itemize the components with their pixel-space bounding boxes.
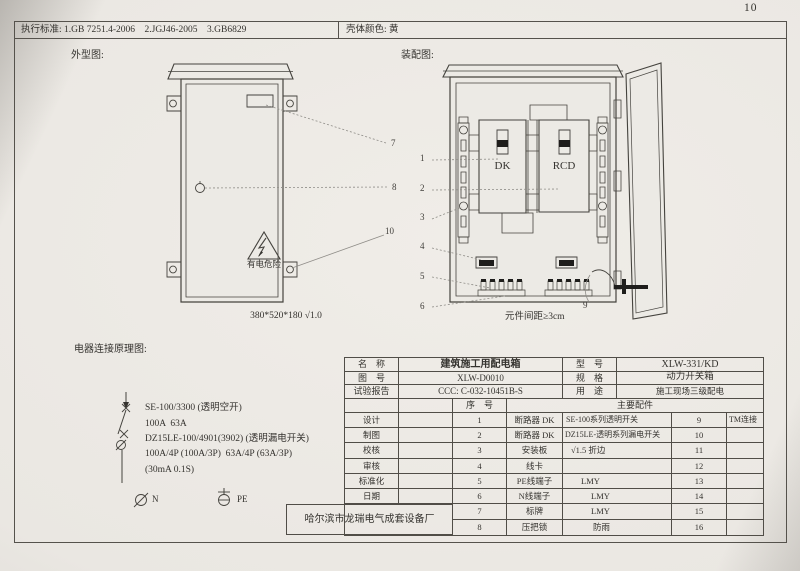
cell-note	[727, 428, 763, 443]
cell-seq-header: 序 号	[453, 399, 507, 413]
cell-seq: 7	[453, 504, 507, 520]
cell-model-label: 型 号	[563, 358, 617, 372]
cell-seq: 3	[453, 443, 507, 459]
callout-4: 4	[420, 241, 425, 251]
spec-line-4: 100A/4P (100A/3P) 63A/4P (63A/3P)	[145, 449, 292, 460]
assembly-view-title: 装配图:	[401, 50, 434, 62]
callout-7: 7	[391, 138, 396, 148]
cell-use-value: 施工现场三级配电	[617, 385, 763, 399]
cell-model-value: XLW-331/KD	[617, 358, 763, 372]
callout-8: 8	[392, 182, 397, 192]
callout-3: 3	[420, 212, 425, 222]
cell-part-name: 断路器 DK	[507, 413, 563, 428]
callout-6: 6	[420, 301, 425, 311]
cell-part-name: 标牌	[507, 504, 563, 520]
cell-main-parts-header: 主要配件	[507, 399, 763, 413]
cell-seq: 4	[453, 459, 507, 474]
cell-part-desc: 防雨	[563, 520, 672, 535]
cell-drawing-no-label: 图 号	[345, 372, 399, 385]
component-label-dk: DK	[479, 160, 526, 173]
cell-seq2: 12	[672, 459, 727, 474]
cell-seq2: 16	[672, 520, 727, 535]
callout-2: 2	[420, 183, 425, 193]
warning-text: 有电危险	[240, 260, 288, 270]
cell-part-desc: DZ15LE-透明系列漏电开关	[563, 428, 672, 443]
cabinet-door	[626, 63, 667, 319]
cell-part-name: N线端子	[507, 489, 563, 504]
cell-note	[727, 520, 763, 535]
cell-blank	[399, 474, 453, 489]
callout-10: 10	[385, 226, 394, 236]
cell-blank	[399, 489, 453, 504]
cell-note	[727, 459, 763, 474]
cell-sign-design: 设计	[345, 413, 399, 428]
callout-5: 5	[420, 271, 425, 281]
cell-sign-draw: 制图	[345, 428, 399, 443]
cell-sign-audit: 审核	[345, 459, 399, 474]
dimension-note: 380*520*180 √1.0	[230, 311, 342, 322]
cell-blank	[399, 459, 453, 474]
assembly-cabinet-drawing	[432, 63, 667, 319]
manufacturer-box: 哈尔滨市龙瑞电气成套设备厂	[286, 504, 453, 535]
cell-blank	[399, 399, 453, 413]
cell-part-desc	[563, 459, 672, 474]
cell-note: TM连接	[727, 413, 763, 428]
cell-name-value: 建筑施工用配电箱	[399, 358, 563, 372]
cell-seq2: 9	[672, 413, 727, 428]
cell-test-report-label: 试验报告	[345, 385, 399, 399]
cell-drawing-no-value: XLW-D0010	[399, 372, 563, 385]
cell-part-name: 压把锁	[507, 520, 563, 535]
cell-part-desc: LMY	[563, 474, 672, 489]
pe-label: PE	[237, 494, 248, 504]
cell-seq: 6	[453, 489, 507, 504]
cell-use-label: 用 途	[563, 385, 617, 399]
cell-sign-check: 校核	[345, 443, 399, 459]
cell-part-desc: LMY	[563, 489, 672, 504]
cell-note	[727, 474, 763, 489]
spacing-note: 元件间距≥3cm	[505, 312, 565, 323]
pe-terminal-icon	[218, 488, 230, 506]
spec-line-3: DZ15LE-100/4901(3902) (透明漏电开关)	[145, 434, 309, 445]
cell-note	[727, 443, 763, 459]
cell-blank	[399, 443, 453, 459]
cell-seq2: 11	[672, 443, 727, 459]
cell-spec-value: 动力开关箱	[617, 372, 763, 385]
spec-line-5: (30mA 0.1S)	[145, 465, 194, 476]
title-block-table: 名 称 建筑施工用配电箱 型 号 XLW-331/KD 图 号 XLW-D001…	[344, 357, 764, 536]
cell-seq2: 15	[672, 504, 727, 520]
cell-note	[727, 489, 763, 504]
cell-blank	[399, 428, 453, 443]
cell-sign-standard: 标准化	[345, 474, 399, 489]
cell-seq: 2	[453, 428, 507, 443]
callout-9: 9	[583, 300, 588, 310]
cell-part-name: 断路器 DK	[507, 428, 563, 443]
cell-seq2: 13	[672, 474, 727, 489]
neutral-label: N	[152, 494, 159, 504]
drawing-sheet: 10 执行标准: 1.GB 7251.4-2006 2.JGJ46-2005 3…	[0, 0, 800, 571]
cell-part-desc: SE-100系列透明开关	[563, 413, 672, 428]
cell-part-desc: √1.5 折边	[563, 443, 672, 459]
neutral-bus-icon	[134, 493, 148, 507]
spec-line-1: SE-100/3300 (透明空开)	[145, 403, 242, 414]
cell-part-desc: LMY	[563, 504, 672, 520]
outline-view-title: 外型图:	[71, 50, 104, 62]
cell-sign-date: 日期	[345, 489, 399, 504]
cell-seq2: 10	[672, 428, 727, 443]
cell-note	[727, 504, 763, 520]
cell-part-name: 线卡	[507, 459, 563, 474]
cell-part-name: PE线端子	[507, 474, 563, 489]
cell-seq: 1	[453, 413, 507, 428]
schematic-title: 电器连接原理图:	[74, 344, 147, 356]
cell-blank	[345, 399, 399, 413]
cell-seq: 8	[453, 520, 507, 535]
callout-1: 1	[420, 153, 425, 163]
cell-blank	[399, 413, 453, 428]
component-label-rcd: RCD	[539, 160, 589, 173]
spec-line-2: 100A 63A	[145, 419, 187, 430]
cell-seq2: 14	[672, 489, 727, 504]
cell-test-report-value: CCC: C-032-10451B-S	[399, 385, 563, 399]
cell-spec-label: 规 格	[563, 372, 617, 385]
cell-part-name: 安装板	[507, 443, 563, 459]
cell-seq: 5	[453, 474, 507, 489]
cell-name-label: 名 称	[345, 358, 399, 372]
